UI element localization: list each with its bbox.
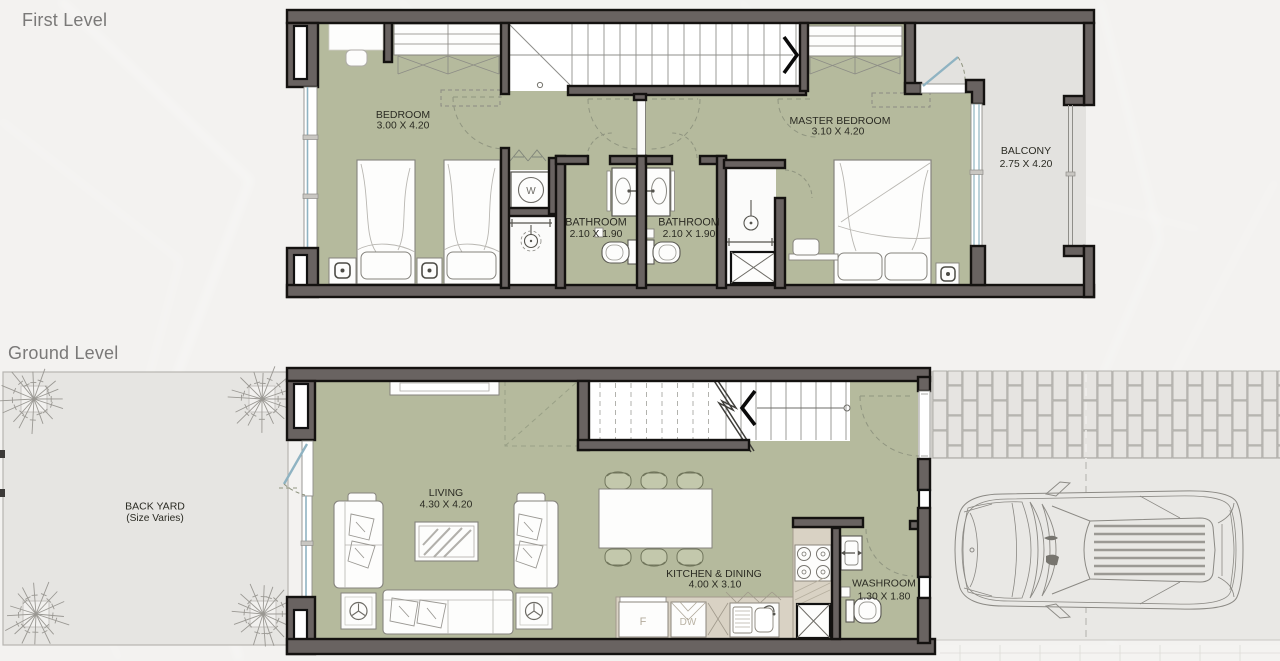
svg-text:BATHROOM: BATHROOM [658, 217, 720, 229]
svg-text:First Level: First Level [22, 10, 107, 30]
svg-text:2.10 X 1.90: 2.10 X 1.90 [570, 229, 623, 240]
svg-text:WASHROOM: WASHROOM [852, 578, 916, 590]
svg-text:3.10 X 4.20: 3.10 X 4.20 [812, 127, 865, 138]
svg-text:(Size Varies): (Size Varies) [126, 513, 184, 524]
svg-text:BEDROOM: BEDROOM [376, 109, 430, 121]
svg-text:LIVING: LIVING [429, 487, 463, 499]
svg-text:1.30 X 1.80: 1.30 X 1.80 [858, 592, 911, 603]
svg-text:2.10 X 1.90: 2.10 X 1.90 [663, 229, 716, 240]
svg-text:BALCONY: BALCONY [1001, 145, 1051, 157]
svg-text:4.00 X 3.10: 4.00 X 3.10 [689, 580, 742, 591]
svg-text:F: F [640, 616, 647, 628]
svg-text:BATHROOM: BATHROOM [565, 217, 627, 229]
svg-text:3.00 X 4.20: 3.00 X 4.20 [377, 121, 430, 132]
svg-text:MASTER BEDROOM: MASTER BEDROOM [790, 115, 891, 127]
svg-text:DW: DW [680, 617, 697, 628]
svg-text:KITCHEN & DINING: KITCHEN & DINING [666, 568, 762, 580]
svg-text:2.75 X 4.20: 2.75 X 4.20 [1000, 159, 1053, 170]
svg-text:Ground Level: Ground Level [8, 343, 118, 363]
svg-text:BACK YARD: BACK YARD [125, 501, 185, 513]
svg-text:4.30 X 4.20: 4.30 X 4.20 [420, 500, 473, 511]
svg-text:W: W [526, 186, 536, 197]
